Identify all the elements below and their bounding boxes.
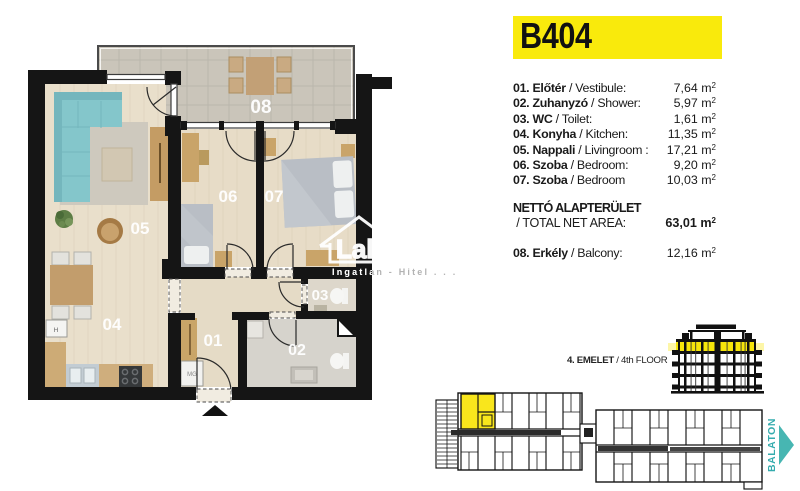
svg-text:BALATON: BALATON bbox=[766, 418, 778, 472]
svg-text:Lak: Lak bbox=[336, 234, 381, 264]
